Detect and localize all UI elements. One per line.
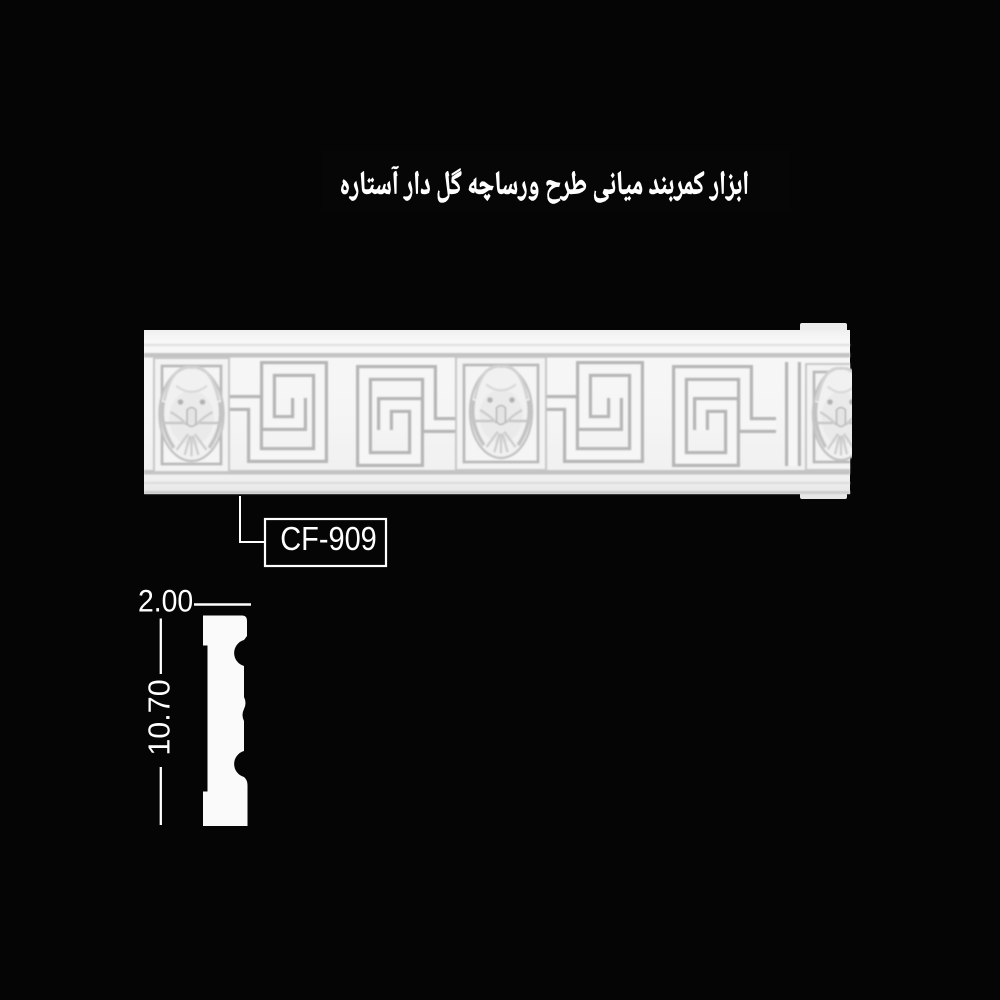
svg-text:2.00: 2.00 — [138, 584, 193, 619]
svg-text:10.70: 10.70 — [143, 679, 177, 755]
svg-text:CF-909: CF-909 — [280, 520, 376, 557]
